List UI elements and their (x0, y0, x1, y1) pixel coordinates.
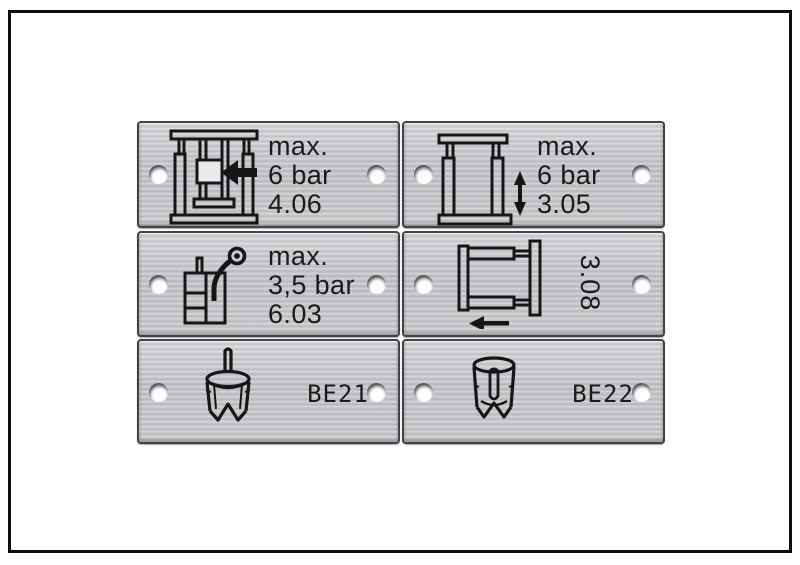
plate-text: max. 6 bar 3.05 (537, 132, 601, 219)
plate-text-line: 6 bar (537, 161, 601, 190)
suction-cup-pin-up-icon (205, 346, 251, 432)
plate-text-line: 3,5 bar (268, 271, 355, 300)
label-plate-3-08: 3.08 (402, 231, 665, 337)
press-feed-arrow-icon (169, 129, 259, 225)
frame-horizontal-stroke-arrow-icon (457, 239, 547, 329)
plate-text-line: 3.05 (537, 190, 601, 219)
plate-text-line: 6.03 (268, 300, 355, 329)
mounting-hole-left (149, 383, 168, 402)
suction-cup-inner-pin-icon (472, 356, 516, 426)
mounting-hole-right (367, 275, 386, 294)
container-spray-nozzle-icon (183, 245, 247, 325)
mounting-hole-left (414, 275, 433, 294)
mounting-hole-right (632, 275, 651, 294)
plate-text-rotated: 3.08 (573, 243, 607, 323)
label-plate-3-05: max. 6 bar 3.05 (402, 121, 665, 228)
label-plate-4-06: max. 6 bar 4.06 (137, 121, 400, 228)
label-plate-6-03: max. 3,5 bar 6.03 (137, 231, 400, 337)
mounting-hole-left (149, 165, 168, 184)
plate-text-line: 6 bar (268, 161, 332, 190)
plate-text-line: max. (268, 132, 332, 161)
labels-photo-page: { "board": { "background_color": "#fffff… (0, 0, 800, 565)
plate-text: max. 6 bar 4.06 (268, 132, 332, 219)
plate-text: BE22 (564, 380, 642, 408)
plate-text-line: 4.06 (268, 190, 332, 219)
border-frame (8, 10, 792, 553)
plate-text-line: max. (537, 132, 601, 161)
mounting-hole-left (414, 165, 433, 184)
label-plate-be21: BE21 (137, 339, 400, 444)
plate-text: BE21 (299, 380, 377, 408)
plate-text-line: max. (268, 242, 355, 271)
mounting-hole-right (632, 165, 651, 184)
frame-vertical-stroke-arrow-icon (435, 130, 527, 226)
label-plate-be22: BE22 (402, 339, 665, 444)
mounting-hole-left (414, 383, 433, 402)
plate-text: max. 3,5 bar 6.03 (268, 242, 355, 329)
mounting-hole-left (149, 275, 168, 294)
mounting-hole-right (367, 165, 386, 184)
